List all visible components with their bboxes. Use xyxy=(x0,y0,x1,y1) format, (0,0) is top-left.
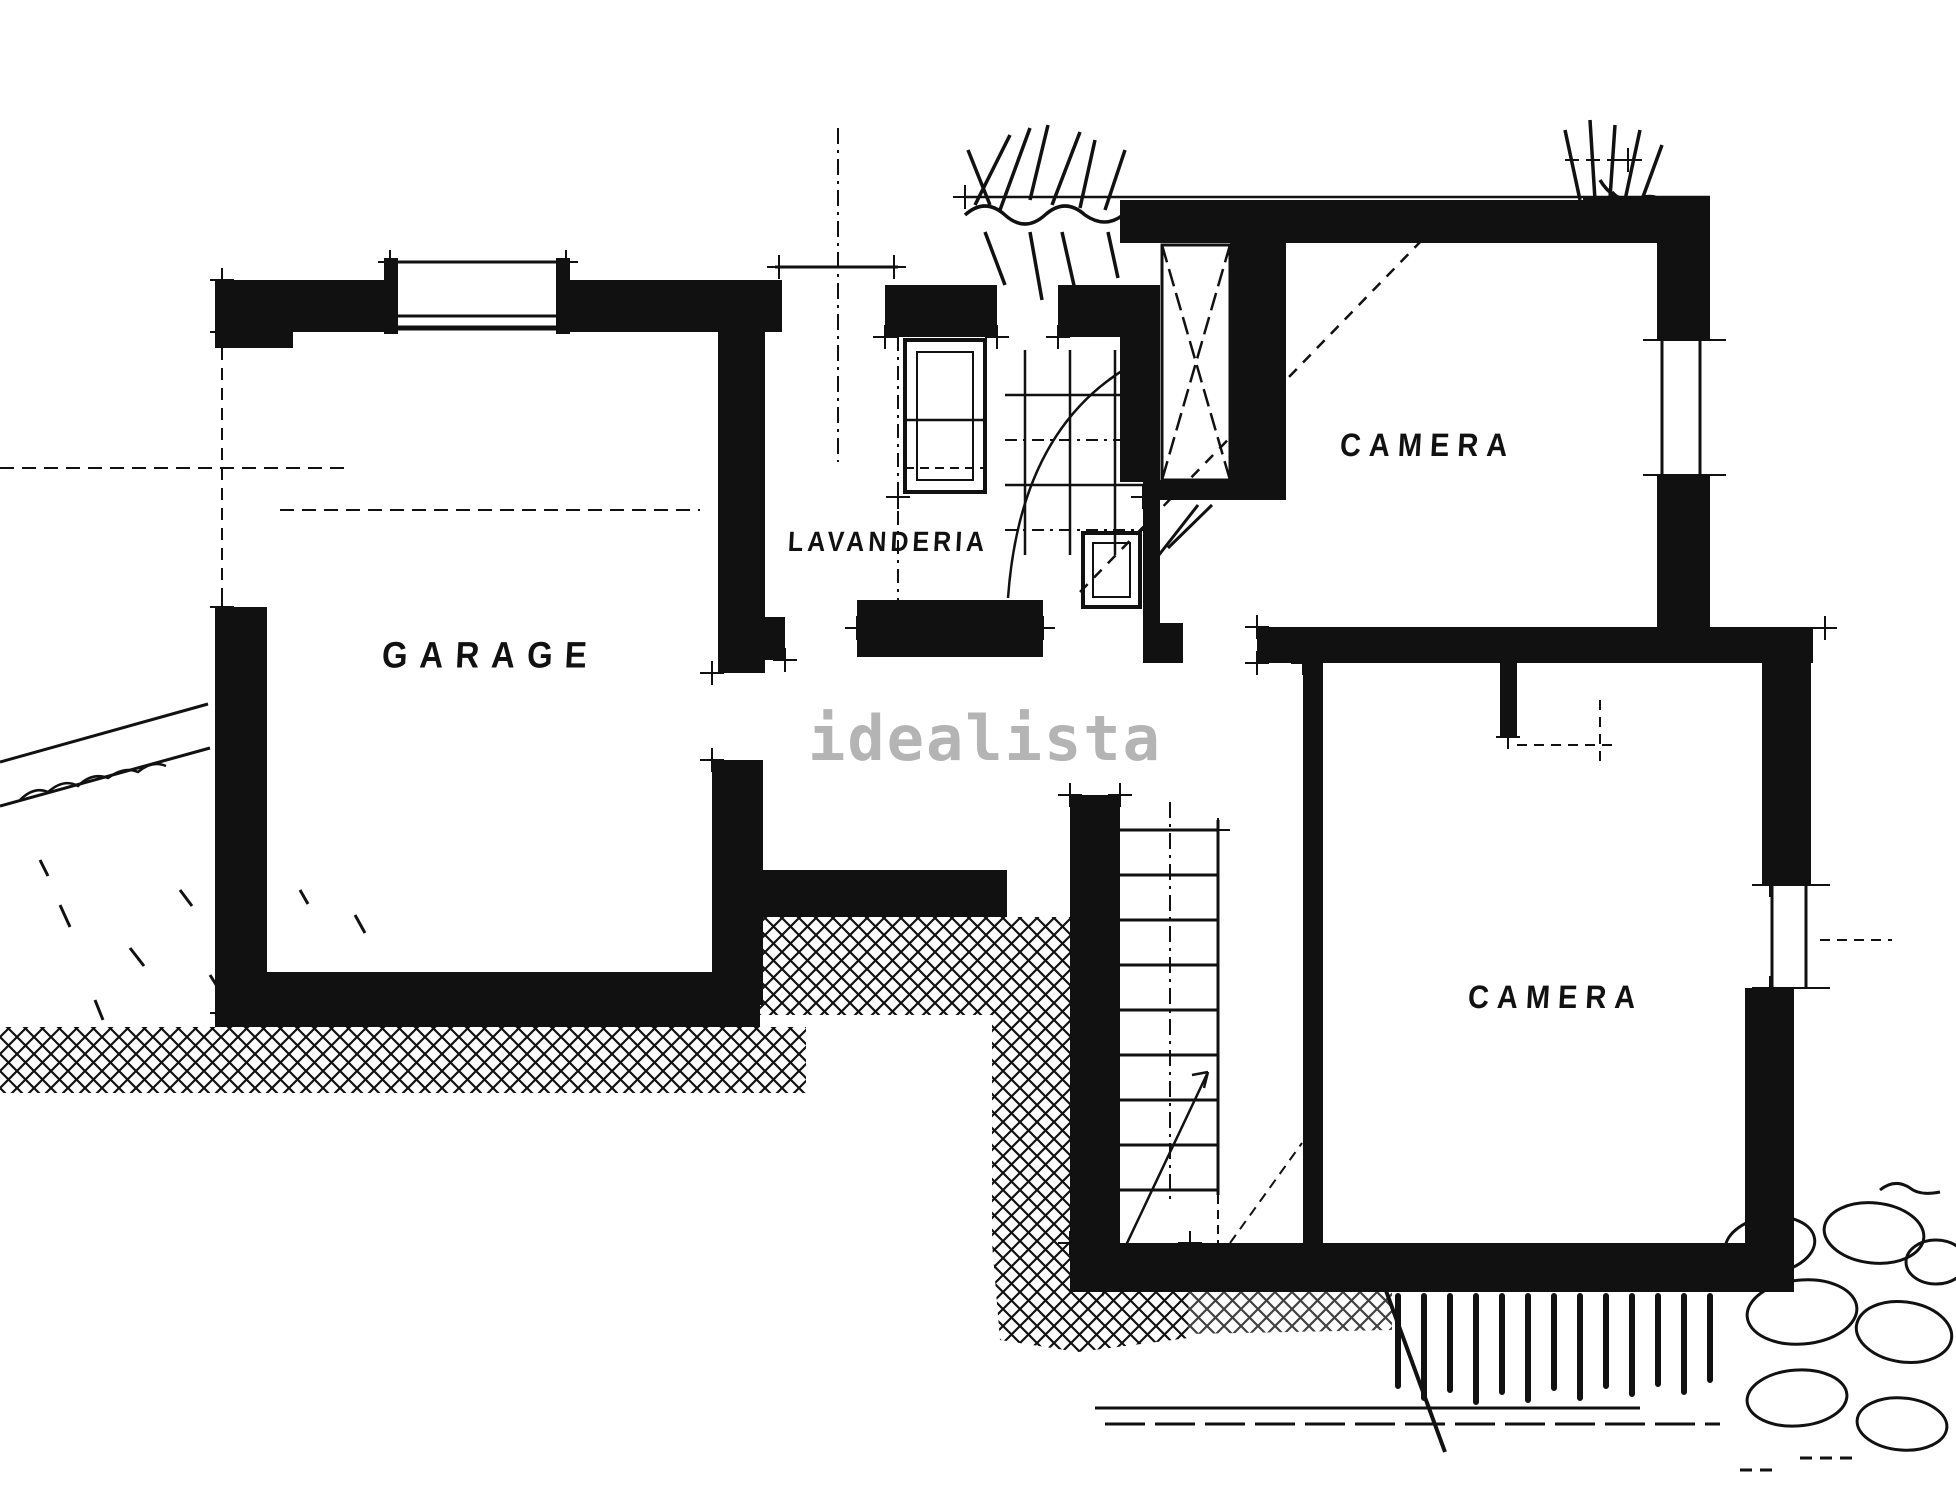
camera-top-corner xyxy=(1583,197,1710,243)
vestibule-top-wall-left xyxy=(885,285,997,337)
garage-bottom-wall xyxy=(215,972,760,1027)
camera-top-wall xyxy=(1120,200,1583,243)
room-label-camera-bottom: CAMERA xyxy=(1467,980,1644,1017)
plants-sketch-right xyxy=(1565,120,1668,210)
vestibule-top-wall-right xyxy=(1058,285,1160,337)
camera2-right-wall-upper xyxy=(1762,660,1811,885)
garage-top-wall-left xyxy=(215,280,398,332)
camera-right-wall-upper xyxy=(1657,243,1710,340)
idealista-watermark: idealista xyxy=(808,702,1162,775)
garage-right-wall-lower xyxy=(712,760,763,1005)
plants-sketch-left xyxy=(965,125,1125,300)
room-label-camera-top: CAMERA xyxy=(1339,428,1516,465)
floor-plan: GARAGE LAVANDERIA CAMERA CAMERA idealist… xyxy=(0,0,1956,1500)
camera2-bottom-wall xyxy=(1070,1243,1792,1292)
garage-corner-stub xyxy=(215,332,293,348)
camera-right-wall-lower xyxy=(1657,475,1710,628)
stairwell-left-wall xyxy=(1070,795,1120,1243)
corridor-bottom-wall xyxy=(760,870,1007,917)
laundry-bottom-wall xyxy=(857,600,1043,657)
door-jamb-stub xyxy=(765,617,785,660)
garage-left-wall xyxy=(215,607,267,1013)
stairwell-right-wall xyxy=(1303,663,1323,1243)
bath-wall-stub xyxy=(1143,623,1183,663)
garage-right-wall-upper xyxy=(718,332,765,673)
garage-top-wall-right xyxy=(558,280,782,332)
closet-bottom-wall xyxy=(1157,480,1235,500)
camera-left-wall xyxy=(1230,243,1286,500)
room-label-garage: GARAGE xyxy=(381,634,600,677)
camera-bottom-wall xyxy=(1257,627,1813,663)
bath-wall-upper xyxy=(1120,337,1160,482)
room-label-lavanderia: LAVANDERIA xyxy=(787,526,989,558)
